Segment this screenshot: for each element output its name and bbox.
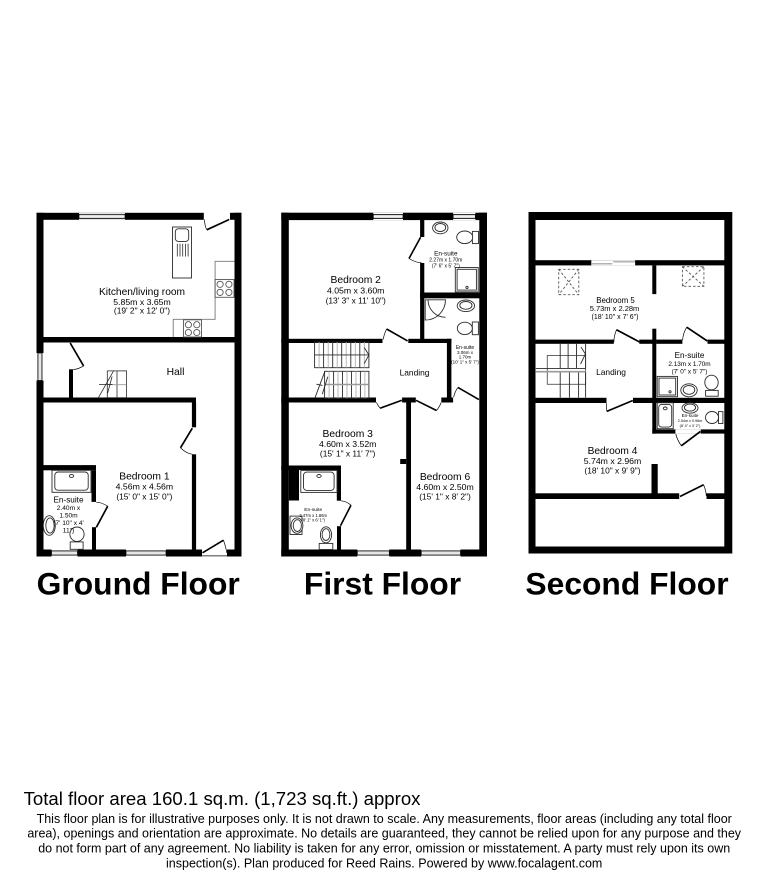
svg-text:This floor plan is for illustr: This floor plan is for illustrative purp… (37, 812, 732, 826)
svg-text:Ground Floor: Ground Floor (37, 566, 240, 602)
svg-text:4.56m x 4.56m: 4.56m x 4.56m (116, 482, 173, 492)
svg-text:First Floor: First Floor (304, 566, 461, 602)
svg-text:(15' 1" x 11' 7"): (15' 1" x 11' 7") (320, 449, 376, 459)
svg-text:(19' 2" x 12' 0"): (19' 2" x 12' 0") (114, 306, 170, 316)
svg-text:Total floor area 160.1 sq.m. (: Total floor area 160.1 sq.m. (1,723 sq.f… (24, 788, 422, 809)
svg-text:Landing: Landing (400, 367, 430, 377)
svg-text:2.13m x 1.70m: 2.13m x 1.70m (668, 361, 710, 368)
svg-text:En-suite: En-suite (682, 413, 699, 418)
svg-text:5.74m x 2.96m: 5.74m x 2.96m (584, 456, 641, 466)
svg-text:(13' 3" x 11' 10"): (13' 3" x 11' 10") (326, 296, 386, 306)
svg-text:do not form part of any agreem: do not form part of any agreement. No li… (38, 842, 730, 856)
svg-text:Hall: Hall (167, 367, 185, 378)
svg-text:inspection(s). Plan produced f: inspection(s). Plan produced for Reed Ra… (166, 856, 602, 870)
svg-text:Second Floor: Second Floor (525, 566, 728, 602)
svg-text:En-suite: En-suite (675, 351, 705, 360)
svg-text:(8' 1" x 6' 1"): (8' 1" x 6' 1") (301, 518, 325, 523)
svg-text:5.73m x 2.28m: 5.73m x 2.28m (590, 304, 640, 313)
svg-text:En-suite: En-suite (53, 495, 83, 504)
svg-text:(7' 0" x 5' 7"): (7' 0" x 5' 7") (672, 369, 708, 376)
svg-text:Bedroom 2: Bedroom 2 (331, 275, 382, 286)
svg-text:2.40m x: 2.40m x (57, 505, 81, 512)
svg-text:4.60m x 2.50m: 4.60m x 2.50m (416, 482, 473, 492)
svg-text:(18' 10" x 7' 6"): (18' 10" x 7' 6") (592, 314, 639, 321)
svg-text:(18' 10" x 9' 9"): (18' 10" x 9' 9") (584, 465, 640, 475)
svg-text:(8' 4" x 3' 2"): (8' 4" x 3' 2") (680, 424, 701, 428)
svg-text:4.05m x 3.60m: 4.05m x 3.60m (327, 286, 384, 296)
svg-text:(7' 6" x 5' 7"): (7' 6" x 5' 7") (432, 264, 460, 270)
svg-text:11"): 11") (63, 528, 74, 535)
svg-text:(15' 1" x 8' 2"): (15' 1" x 8' 2") (419, 492, 471, 502)
svg-text:4.60m x 3.52m: 4.60m x 3.52m (319, 439, 376, 449)
svg-text:Landing: Landing (596, 367, 626, 377)
svg-text:En-suite: En-suite (434, 251, 458, 258)
svg-text:(15' 0" x 15' 0"): (15' 0" x 15' 0") (116, 491, 172, 501)
svg-text:(7' 10" x 4': (7' 10" x 4' (53, 520, 84, 527)
svg-text:1.50m: 1.50m (59, 513, 78, 520)
svg-text:(10' 1" x 5' 7"): (10' 1" x 5' 7") (451, 359, 479, 364)
svg-text:area), openings and orientatio: area), openings and orientation are appr… (27, 827, 741, 841)
svg-text:2.54m x 0.96m: 2.54m x 0.96m (678, 419, 702, 423)
